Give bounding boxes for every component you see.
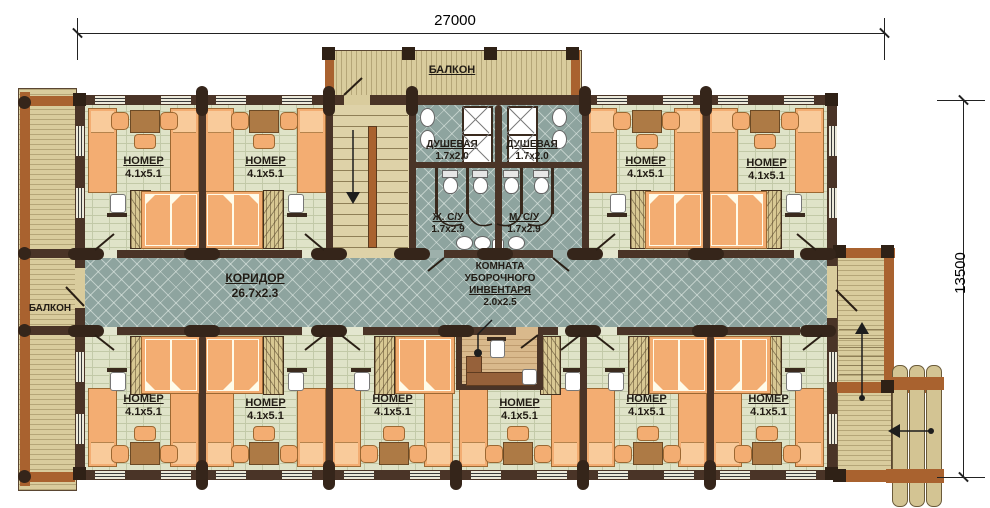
room-top-4: НОМЕР4.1x5.1 — [706, 105, 827, 250]
toilet-icon — [503, 170, 519, 193]
sink-icon — [420, 108, 435, 127]
floor-plan: 27000 13500 БАЛКОН БАЛКОН — [0, 0, 990, 508]
room-bottom-3: НОМЕР4.1x5.1 — [329, 335, 456, 470]
log-end — [196, 460, 208, 490]
door-opening — [516, 327, 538, 335]
room-label: НОМЕР — [456, 397, 583, 410]
sink-shelf — [287, 213, 307, 217]
log-end — [184, 325, 220, 337]
double-bed-icon — [711, 336, 771, 394]
room-label: НОМЕР — [85, 155, 202, 168]
stall-partition — [466, 168, 469, 214]
window — [161, 96, 191, 104]
window — [76, 188, 84, 218]
sink-icon — [456, 236, 473, 250]
sink-icon — [610, 194, 626, 213]
pillow-icon — [798, 442, 821, 464]
shower-right-label: ДУШЕВАЯ1.7x2.0 — [492, 139, 572, 163]
shower-stall-icon — [507, 106, 538, 137]
sink-shelf — [785, 213, 805, 217]
room-label: НОМЕР — [329, 393, 456, 406]
log-end — [184, 248, 220, 260]
window — [720, 471, 750, 479]
window — [95, 471, 125, 479]
window — [598, 471, 628, 479]
room-size: 4.1x5.1 — [456, 410, 583, 423]
log-end — [394, 248, 430, 260]
window — [95, 96, 125, 104]
extension-line — [884, 18, 885, 60]
stool-icon — [281, 112, 299, 130]
wardrobe-icon — [263, 336, 284, 395]
log-end — [402, 47, 415, 60]
log-end — [484, 47, 497, 60]
shower-left-label: ДУШЕВАЯ1.7x2.0 — [412, 139, 492, 163]
double-bed-icon — [203, 336, 263, 394]
log-end — [323, 86, 335, 116]
double-bed-icon — [645, 191, 705, 249]
stool-icon — [663, 445, 681, 463]
room-label: НОМЕР — [202, 155, 329, 168]
extension-line — [937, 477, 985, 478]
steps-beam — [886, 377, 944, 390]
chair-icon — [508, 426, 530, 441]
desk-icon — [250, 442, 280, 465]
double-bed-icon — [141, 336, 201, 394]
room-size: 4.1x5.1 — [85, 168, 202, 181]
window — [216, 471, 246, 479]
wall-segment — [456, 335, 462, 390]
window — [664, 471, 694, 479]
corridor-label: КОРИДОР26.7x2.3 — [195, 271, 315, 301]
sink-icon — [608, 372, 624, 391]
log-end — [579, 86, 591, 116]
log-end — [18, 96, 31, 109]
room-bottom-5: НОМЕР4.1x5.1 — [583, 335, 710, 470]
pillow-icon — [462, 442, 485, 464]
dimension-line-top — [77, 33, 885, 34]
stool-icon — [613, 112, 631, 130]
sink-icon — [354, 372, 370, 391]
log-end — [73, 467, 86, 480]
double-bed-icon — [395, 336, 455, 394]
double-bed-icon — [707, 191, 767, 249]
desk-icon — [633, 442, 663, 465]
wardrobe-icon — [628, 336, 649, 395]
window — [597, 96, 627, 104]
room-label: НОМЕР — [583, 393, 710, 406]
toilet-icon — [533, 170, 549, 193]
desk-icon — [379, 442, 409, 465]
room-size: 4.1x5.1 — [85, 406, 202, 419]
log-end — [311, 248, 347, 260]
log-end — [881, 380, 894, 393]
stool-icon — [360, 445, 378, 463]
room-size: 4.1x5.1 — [329, 406, 456, 419]
desk-icon — [130, 110, 160, 133]
toilet-icon — [472, 170, 488, 193]
window — [344, 471, 374, 479]
stool-icon — [614, 445, 632, 463]
log-end — [68, 248, 104, 260]
window — [784, 96, 814, 104]
room-top-3: НОМЕР4.1x5.1 — [585, 105, 706, 250]
extension-line — [937, 100, 985, 101]
log-end — [450, 460, 462, 490]
double-bed-icon — [649, 336, 709, 394]
log-end — [700, 86, 712, 116]
room-bottom-2: НОМЕР4.1x5.1 — [202, 335, 329, 470]
log-end — [73, 93, 86, 106]
pillow-icon — [300, 111, 323, 133]
room-label: НОМЕР — [706, 157, 827, 170]
pillow-icon — [798, 111, 821, 133]
chair-icon — [636, 134, 658, 149]
stool-icon — [733, 112, 751, 130]
window — [829, 188, 837, 218]
log-end — [196, 86, 208, 116]
desk-icon — [130, 442, 160, 465]
window — [829, 352, 837, 382]
stool-icon — [160, 445, 178, 463]
window — [718, 96, 748, 104]
log-end — [438, 325, 474, 337]
window — [216, 96, 246, 104]
sink-icon — [490, 340, 505, 358]
porch-stairs — [839, 322, 887, 384]
log-end — [566, 47, 579, 60]
shower-stall-icon — [462, 106, 493, 137]
wardrobe-icon — [263, 190, 284, 249]
cleaning-room-label: КОМНАТА УБОРОЧНОГО ИНВЕНТАРЯ 2.0x2.5 — [450, 261, 550, 309]
window — [76, 352, 84, 382]
stool-icon — [111, 112, 129, 130]
room-top-2: НОМЕР4.1x5.1 — [202, 105, 329, 250]
sink-shelf — [107, 213, 127, 217]
stall-partition — [551, 168, 554, 214]
room-top-1: НОМЕР4.1x5.1 — [85, 105, 202, 250]
log-end — [704, 460, 716, 490]
window — [471, 471, 501, 479]
wall-segment — [537, 335, 543, 390]
stall-partition — [435, 168, 438, 214]
dimension-width: 27000 — [395, 12, 515, 29]
chair-icon — [254, 134, 276, 149]
steps-beam — [886, 469, 944, 483]
room-size: 4.1x5.1 — [202, 410, 329, 423]
log-end — [692, 325, 728, 337]
pillow-icon — [589, 442, 612, 464]
desk-icon — [751, 110, 781, 133]
room-size: 4.1x5.1 — [706, 170, 827, 183]
stool-icon — [486, 445, 504, 463]
window — [829, 414, 837, 444]
door-opening — [827, 266, 837, 318]
wardrobe-icon — [540, 336, 561, 395]
room-label: НОМЕР — [202, 397, 329, 410]
stool-icon — [232, 445, 250, 463]
log-end — [577, 460, 589, 490]
balcony-left-label: БАЛКОН — [28, 303, 72, 315]
window — [76, 414, 84, 444]
room-label: НОМЕР — [585, 155, 706, 168]
extension-line — [77, 18, 78, 60]
wc-women-label: Ж. С/У1.7x2.9 — [408, 212, 488, 236]
pillow-icon — [208, 442, 231, 464]
sink-icon — [288, 372, 304, 391]
sink-icon — [565, 372, 581, 391]
door-opening — [75, 268, 85, 308]
stair-stringer — [368, 126, 377, 248]
room-size: 4.1x5.1 — [583, 406, 710, 419]
chair-icon — [134, 134, 156, 149]
window — [76, 126, 84, 156]
sink-icon — [552, 108, 567, 127]
log-end — [322, 47, 335, 60]
pillow-icon — [208, 111, 231, 133]
sink-icon — [110, 194, 126, 213]
log-end — [68, 325, 104, 337]
stool-icon — [735, 445, 753, 463]
stall-partition — [520, 168, 523, 214]
room-label: НОМЕР — [710, 393, 827, 406]
chair-icon — [757, 426, 779, 441]
window — [410, 471, 440, 479]
room-size: 4.1x5.1 — [710, 406, 827, 419]
pillow-icon — [427, 442, 450, 464]
pillow-icon — [591, 111, 614, 133]
chair-icon — [134, 426, 156, 441]
log-end — [477, 248, 513, 260]
double-bed-icon — [203, 191, 263, 249]
log-end — [800, 325, 836, 337]
desk-icon — [504, 442, 534, 465]
stool-icon — [281, 445, 299, 463]
chair-icon — [254, 426, 276, 441]
log-end — [825, 93, 838, 106]
pillow-icon — [335, 442, 358, 464]
window — [663, 96, 693, 104]
dimension-height: 13500 — [952, 238, 968, 308]
desk-icon — [753, 442, 783, 465]
desk-icon — [632, 110, 662, 133]
window — [829, 126, 837, 156]
toilet-icon — [442, 170, 458, 193]
stool-icon — [535, 445, 553, 463]
stool-icon — [160, 112, 178, 130]
desk-icon — [250, 110, 280, 133]
log-end — [565, 325, 601, 337]
room-size: 4.1x5.1 — [585, 168, 706, 181]
stool-icon — [232, 112, 250, 130]
stool-icon — [662, 112, 680, 130]
log-end — [567, 248, 603, 260]
sink-icon — [508, 236, 525, 250]
window — [282, 96, 312, 104]
balcony-top-label: БАЛКОН — [392, 64, 512, 77]
pillow-icon — [677, 111, 700, 133]
pillow-icon — [300, 442, 323, 464]
pillow-icon — [554, 442, 577, 464]
log-end — [406, 86, 418, 116]
log-end — [825, 467, 838, 480]
window — [537, 471, 567, 479]
sink-icon — [786, 372, 802, 391]
log-end — [688, 248, 724, 260]
log-end — [18, 247, 31, 260]
room-bottom-6: НОМЕР4.1x5.1 — [710, 335, 827, 470]
chair-icon — [755, 134, 777, 149]
room-size: 4.1x5.1 — [202, 168, 329, 181]
room-label: НОМЕР — [85, 393, 202, 406]
sink-icon — [786, 194, 802, 213]
window — [282, 471, 312, 479]
chair-icon — [637, 426, 659, 441]
balcony-edge-beam — [20, 92, 30, 486]
log-end — [881, 245, 894, 258]
log-end — [18, 324, 31, 337]
double-bed-icon — [141, 191, 201, 249]
pillow-icon — [681, 442, 704, 464]
log-end — [800, 248, 836, 260]
chair-icon — [383, 426, 405, 441]
stool-icon — [784, 445, 802, 463]
fixture — [522, 369, 537, 385]
door-opening — [344, 95, 370, 105]
wc-men-label: М. С/У1.7x2.9 — [484, 212, 564, 236]
stool-icon — [111, 445, 129, 463]
sink-icon — [288, 194, 304, 213]
window — [786, 471, 816, 479]
wardrobe-icon — [374, 336, 395, 395]
sink-icon — [110, 372, 126, 391]
sink-shelf — [607, 213, 627, 217]
stool-icon — [782, 112, 800, 130]
log-end — [18, 470, 31, 483]
log-end — [323, 460, 335, 490]
room-bottom-1: НОМЕР4.1x5.1 — [85, 335, 202, 470]
window — [161, 471, 191, 479]
log-end — [311, 325, 347, 337]
stool-icon — [409, 445, 427, 463]
